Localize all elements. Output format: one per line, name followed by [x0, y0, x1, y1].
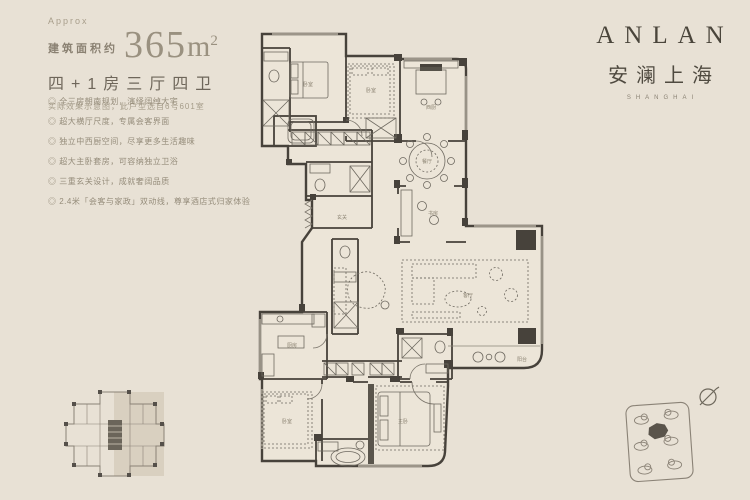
svg-text:主卧: 主卧	[398, 418, 408, 425]
brand-name-cn: 安澜上海	[575, 59, 745, 88]
svg-text:卧室: 卧室	[282, 418, 292, 425]
brand-city: SHANGHAI	[575, 95, 745, 101]
brand-logo: ANLAN 安澜上海 SHANGHAI	[575, 22, 745, 101]
site-buildings	[632, 409, 682, 475]
site-current-building	[648, 422, 669, 439]
svg-text:卧室: 卧室	[303, 81, 313, 88]
floor-plan: 卧室 卧室 西厨 餐厅 书房 客厅 玄关 厨房 卧室 主卧 阳台	[250, 14, 550, 480]
feature-item: ◎ 2.4米「会客与家政」双动线，尊享酒店式归家体验	[48, 192, 263, 212]
feature-item: ◎ 超大主卧套房，可容纳独立卫浴	[48, 152, 263, 172]
svg-text:玄关: 玄关	[337, 214, 347, 221]
north-compass-icon	[700, 387, 719, 405]
key-plan	[52, 384, 177, 484]
svg-text:书房: 书房	[428, 210, 438, 217]
page: Approx 建筑面积约 365 m 2 四+1房三厅四卫 实际效果示意图，此户…	[0, 0, 750, 500]
feature-item: ◎ 超大横厅尺度，专属会客界面	[48, 112, 263, 132]
key-plan-core	[108, 420, 122, 450]
svg-text:厨房: 厨房	[287, 342, 297, 349]
area-value: 365	[124, 28, 187, 62]
svg-text:阳台: 阳台	[517, 356, 527, 363]
svg-text:餐厅: 餐厅	[422, 158, 432, 165]
svg-text:西厨: 西厨	[426, 105, 436, 111]
master-wardrobe-wall	[368, 384, 374, 464]
feature-item: ◎ 全三房朝南规划，演绎阔绰大宅	[48, 92, 263, 112]
svg-text:客厅: 客厅	[463, 292, 473, 299]
area-superscript: 2	[210, 33, 218, 50]
feature-list: ◎ 全三房朝南规划，演绎阔绰大宅 ◎ 超大横厅尺度，专属会客界面 ◎ 独立中西厨…	[48, 92, 263, 212]
brand-name-en: ANLAN	[575, 22, 745, 50]
area-unit: m	[187, 32, 210, 62]
area-row: 建筑面积约 365 m 2	[48, 28, 258, 62]
svg-text:卧室: 卧室	[366, 87, 376, 94]
site-plan	[616, 382, 731, 487]
floor-plan-outline	[260, 34, 542, 466]
layout-summary: 四+1房三厅四卫	[48, 70, 258, 94]
feature-item: ◎ 独立中西厨空间，尽享更多生活趣味	[48, 132, 263, 152]
site-boundary	[625, 402, 693, 482]
feature-item: ◎ 三重玄关设计，成就奢阔品质	[48, 172, 263, 192]
area-label: 建筑面积约	[48, 40, 118, 62]
